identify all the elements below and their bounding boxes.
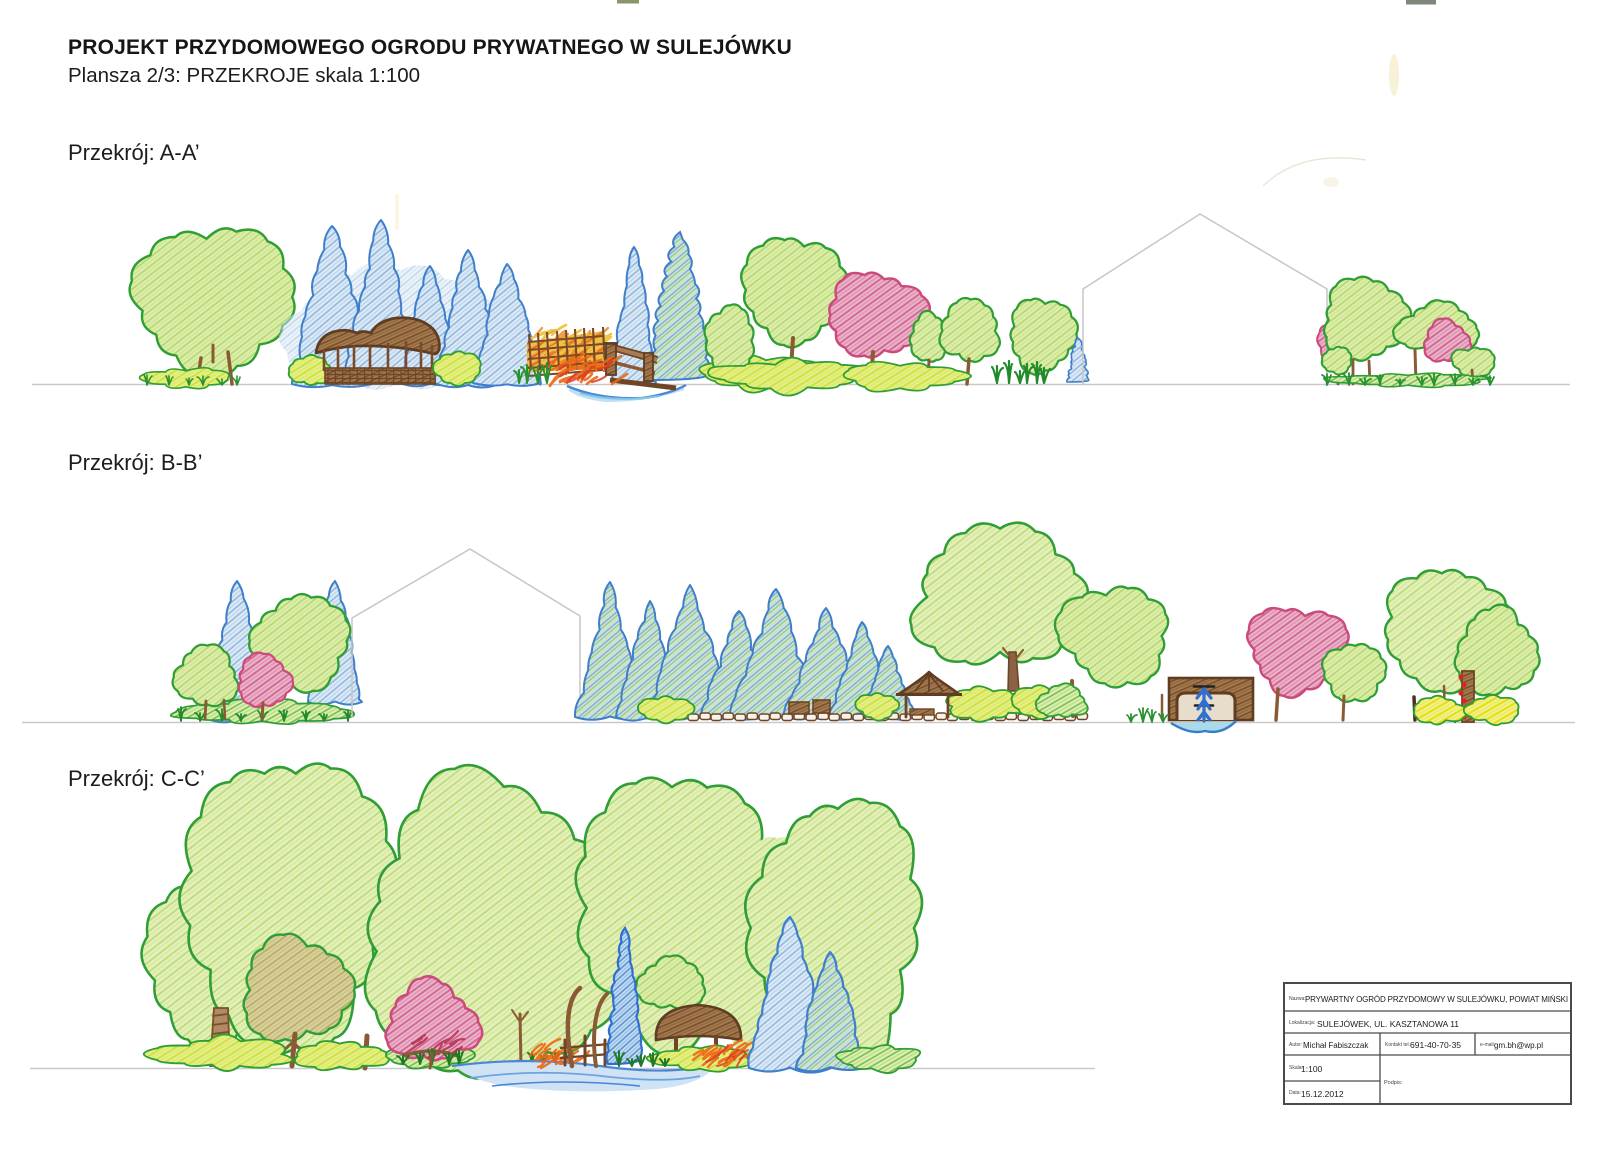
svg-text:Michał Fabiszczak: Michał Fabiszczak [1303,1041,1369,1050]
svg-text:Przekrój: B-B’: Przekrój: B-B’ [68,450,202,475]
svg-text:Autor:: Autor: [1289,1042,1302,1048]
svg-text:Przekrój: C-C’: Przekrój: C-C’ [68,766,205,791]
svg-text:1:100: 1:100 [1301,1064,1323,1074]
svg-text:PROJEKT PRZYDOMOWEGO OGRODU PR: PROJEKT PRZYDOMOWEGO OGRODU PRYWATNEGO W… [68,35,792,59]
svg-text:Data:: Data: [1289,1090,1301,1096]
svg-text:Plansza 2/3: PRZEKROJE skala 1: Plansza 2/3: PRZEKROJE skala 1:100 [68,64,420,87]
svg-text:Lokalizacja:: Lokalizacja: [1289,1020,1315,1026]
svg-text:Przekrój: A-A’: Przekrój: A-A’ [68,140,200,165]
svg-text:SULEJÓWEK, UL. KASZTANOWA 11: SULEJÓWEK, UL. KASZTANOWA 11 [1317,1019,1459,1029]
svg-text:15.12.2012: 15.12.2012 [1301,1089,1344,1099]
svg-text:Podpis:: Podpis: [1384,1080,1403,1086]
svg-text:gm.bh@wp.pl: gm.bh@wp.pl [1494,1041,1543,1050]
svg-text:Nazwa:: Nazwa: [1289,996,1306,1002]
svg-text:PRYWARTNY OGRÓD PRZYDOMOWY W S: PRYWARTNY OGRÓD PRZYDOMOWY W SULEJÓWKU, … [1305,995,1568,1004]
svg-text:e-mail:: e-mail: [1480,1042,1495,1048]
svg-text:Kontakt tel.:: Kontakt tel.: [1385,1042,1411,1048]
svg-text:691-40-70-35: 691-40-70-35 [1410,1040,1461,1050]
